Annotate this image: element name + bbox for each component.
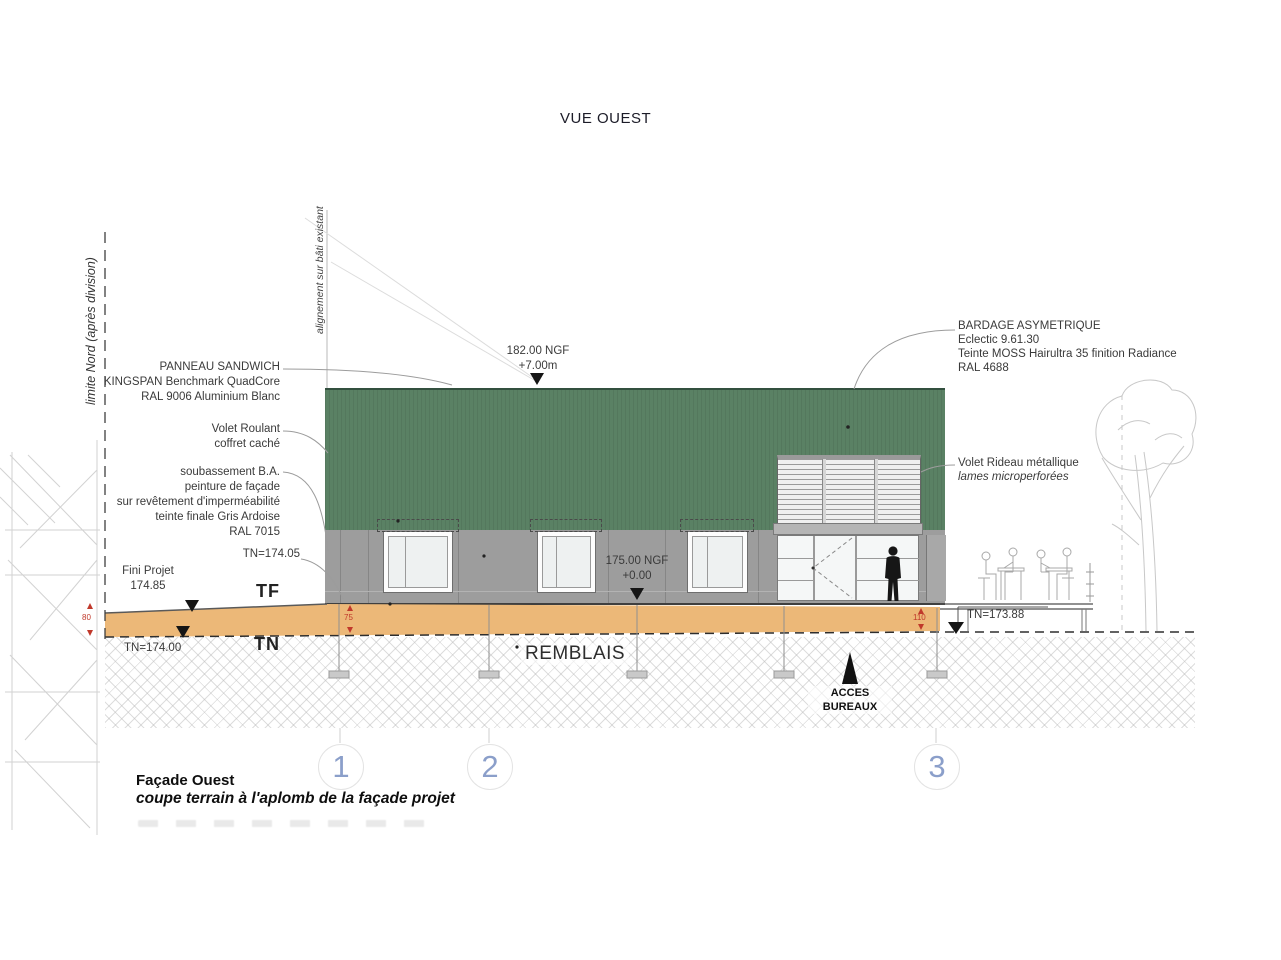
dim-75: 75 xyxy=(344,613,353,622)
callout-line: Teinte MOSS Hairultra 35 finition Radian… xyxy=(958,347,1177,361)
tree-sketch xyxy=(1096,380,1196,631)
callout-line: PANNEAU SANDWICH xyxy=(104,360,280,375)
window-glass xyxy=(388,536,448,588)
callout-line: Volet Rideau métallique xyxy=(958,456,1079,470)
shutter-box-outline-1 xyxy=(377,519,459,532)
entrance-glazing xyxy=(777,535,919,601)
callout-line: soubassement B.A. xyxy=(117,465,280,480)
level-fini-projet: Fini Projet 174.85 xyxy=(113,564,183,594)
level-floor-ngf: 175.00 NGF +0.00 xyxy=(597,554,677,584)
glazing-rail xyxy=(857,580,920,581)
callout-volet-roulant: Volet Roulant coffret caché xyxy=(212,422,280,452)
acces-bureaux-label: ACCES BUREAUX xyxy=(808,686,892,714)
drawing-title: Façade Ouest xyxy=(136,772,234,789)
window-2 xyxy=(537,531,596,593)
glazing-rail xyxy=(778,558,813,559)
panel-joint xyxy=(340,530,341,603)
callout-line: KINGSPAN Benchmark QuadCore xyxy=(104,375,280,390)
level-line: +7.00m xyxy=(498,359,578,374)
window-glass xyxy=(692,536,743,588)
corner-panel xyxy=(926,535,946,601)
people-sketch xyxy=(978,548,1074,600)
glazing-rail xyxy=(857,558,920,559)
drawing-subtitle: coupe terrain à l'aplomb de la façade pr… xyxy=(136,790,455,808)
acces-line: ACCES xyxy=(808,686,892,700)
grid-bubble-3: 3 xyxy=(914,744,960,790)
level-line: 175.00 NGF xyxy=(597,554,677,569)
callout-bardage: BARDAGE ASYMETRIQUE Eclectic 9.61.30 Tei… xyxy=(958,319,1177,375)
callout-line: peinture de façade xyxy=(117,480,280,495)
callout-volet-rideau: Volet Rideau métallique lames microperfo… xyxy=(958,456,1079,484)
callout-line: coffret caché xyxy=(212,437,280,452)
grid-bubble-1: 1 xyxy=(318,744,364,790)
dim-110: 110 xyxy=(913,613,926,622)
level-line: 182.00 NGF xyxy=(498,344,578,359)
glazing-mullion xyxy=(813,536,815,600)
tn-label: TN xyxy=(254,634,280,655)
callout-soubassement: soubassement B.A. peinture de façade sur… xyxy=(117,465,280,540)
elevation-drawing-page: VUE OUEST xyxy=(0,0,1281,960)
callout-line: BARDAGE ASYMETRIQUE xyxy=(958,319,1177,333)
callout-panneau-sandwich: PANNEAU SANDWICH KINGSPAN Benchmark Quad… xyxy=(104,360,280,405)
callout-line: RAL 9006 Aluminium Blanc xyxy=(104,390,280,405)
acces-line: BUREAUX xyxy=(808,700,892,714)
footer-ghost-text xyxy=(138,820,433,827)
existing-structure-sketch xyxy=(0,440,100,835)
callout-line: RAL 4688 xyxy=(958,361,1177,375)
grid-bubble-2: 2 xyxy=(467,744,513,790)
callout-line: lames microperforées xyxy=(958,470,1079,484)
louver-mullion xyxy=(822,459,826,527)
callout-line: RAL 7015 xyxy=(117,525,280,540)
callout-line: Eclectic 9.61.30 xyxy=(958,333,1177,347)
shutter-box-outline-3 xyxy=(680,519,754,532)
window-3 xyxy=(687,531,748,593)
level-top-ngf: 182.00 NGF +7.00m xyxy=(498,344,578,374)
tf-label: TF xyxy=(256,581,280,602)
level-staff-icon xyxy=(1086,563,1094,602)
tf-line xyxy=(105,604,327,613)
window-1 xyxy=(383,531,453,593)
level-tn-173-88: TN=173.88 xyxy=(967,608,1024,623)
glazing-mullion xyxy=(855,536,857,600)
window-glass xyxy=(542,536,591,588)
page-title: VUE OUEST xyxy=(560,110,651,127)
level-line: +0.00 xyxy=(597,569,677,584)
dim-80: 80 xyxy=(82,613,91,622)
callout-line: sur revêtement d'imperméabilité xyxy=(117,495,280,510)
dimension-arrow-icons xyxy=(87,603,924,636)
limite-nord-label: limite Nord (après division) xyxy=(84,257,98,405)
bubble-leaders xyxy=(340,728,936,743)
metal-louver-screen xyxy=(777,455,921,528)
louver-mullion xyxy=(874,459,878,527)
alignement-label: alignement sur bâti existant xyxy=(314,206,326,334)
level-line: 174.85 xyxy=(113,579,183,594)
callout-line: teinte finale Gris Ardoise xyxy=(117,510,280,525)
soil-band xyxy=(105,604,940,637)
panel-joint xyxy=(758,530,759,603)
shutter-box-outline-2 xyxy=(530,519,602,532)
level-tn-174-05: TN=174.05 xyxy=(243,547,300,562)
callout-line: Volet Roulant xyxy=(212,422,280,437)
entrance-lintel xyxy=(773,523,923,535)
glazing-rail xyxy=(778,580,813,581)
level-line: Fini Projet xyxy=(113,564,183,579)
level-tn-174-00: TN=174.00 xyxy=(124,641,181,656)
remblais-label: REMBLAIS xyxy=(521,643,629,665)
panel-joint xyxy=(458,530,459,603)
panel-joint xyxy=(368,530,369,603)
